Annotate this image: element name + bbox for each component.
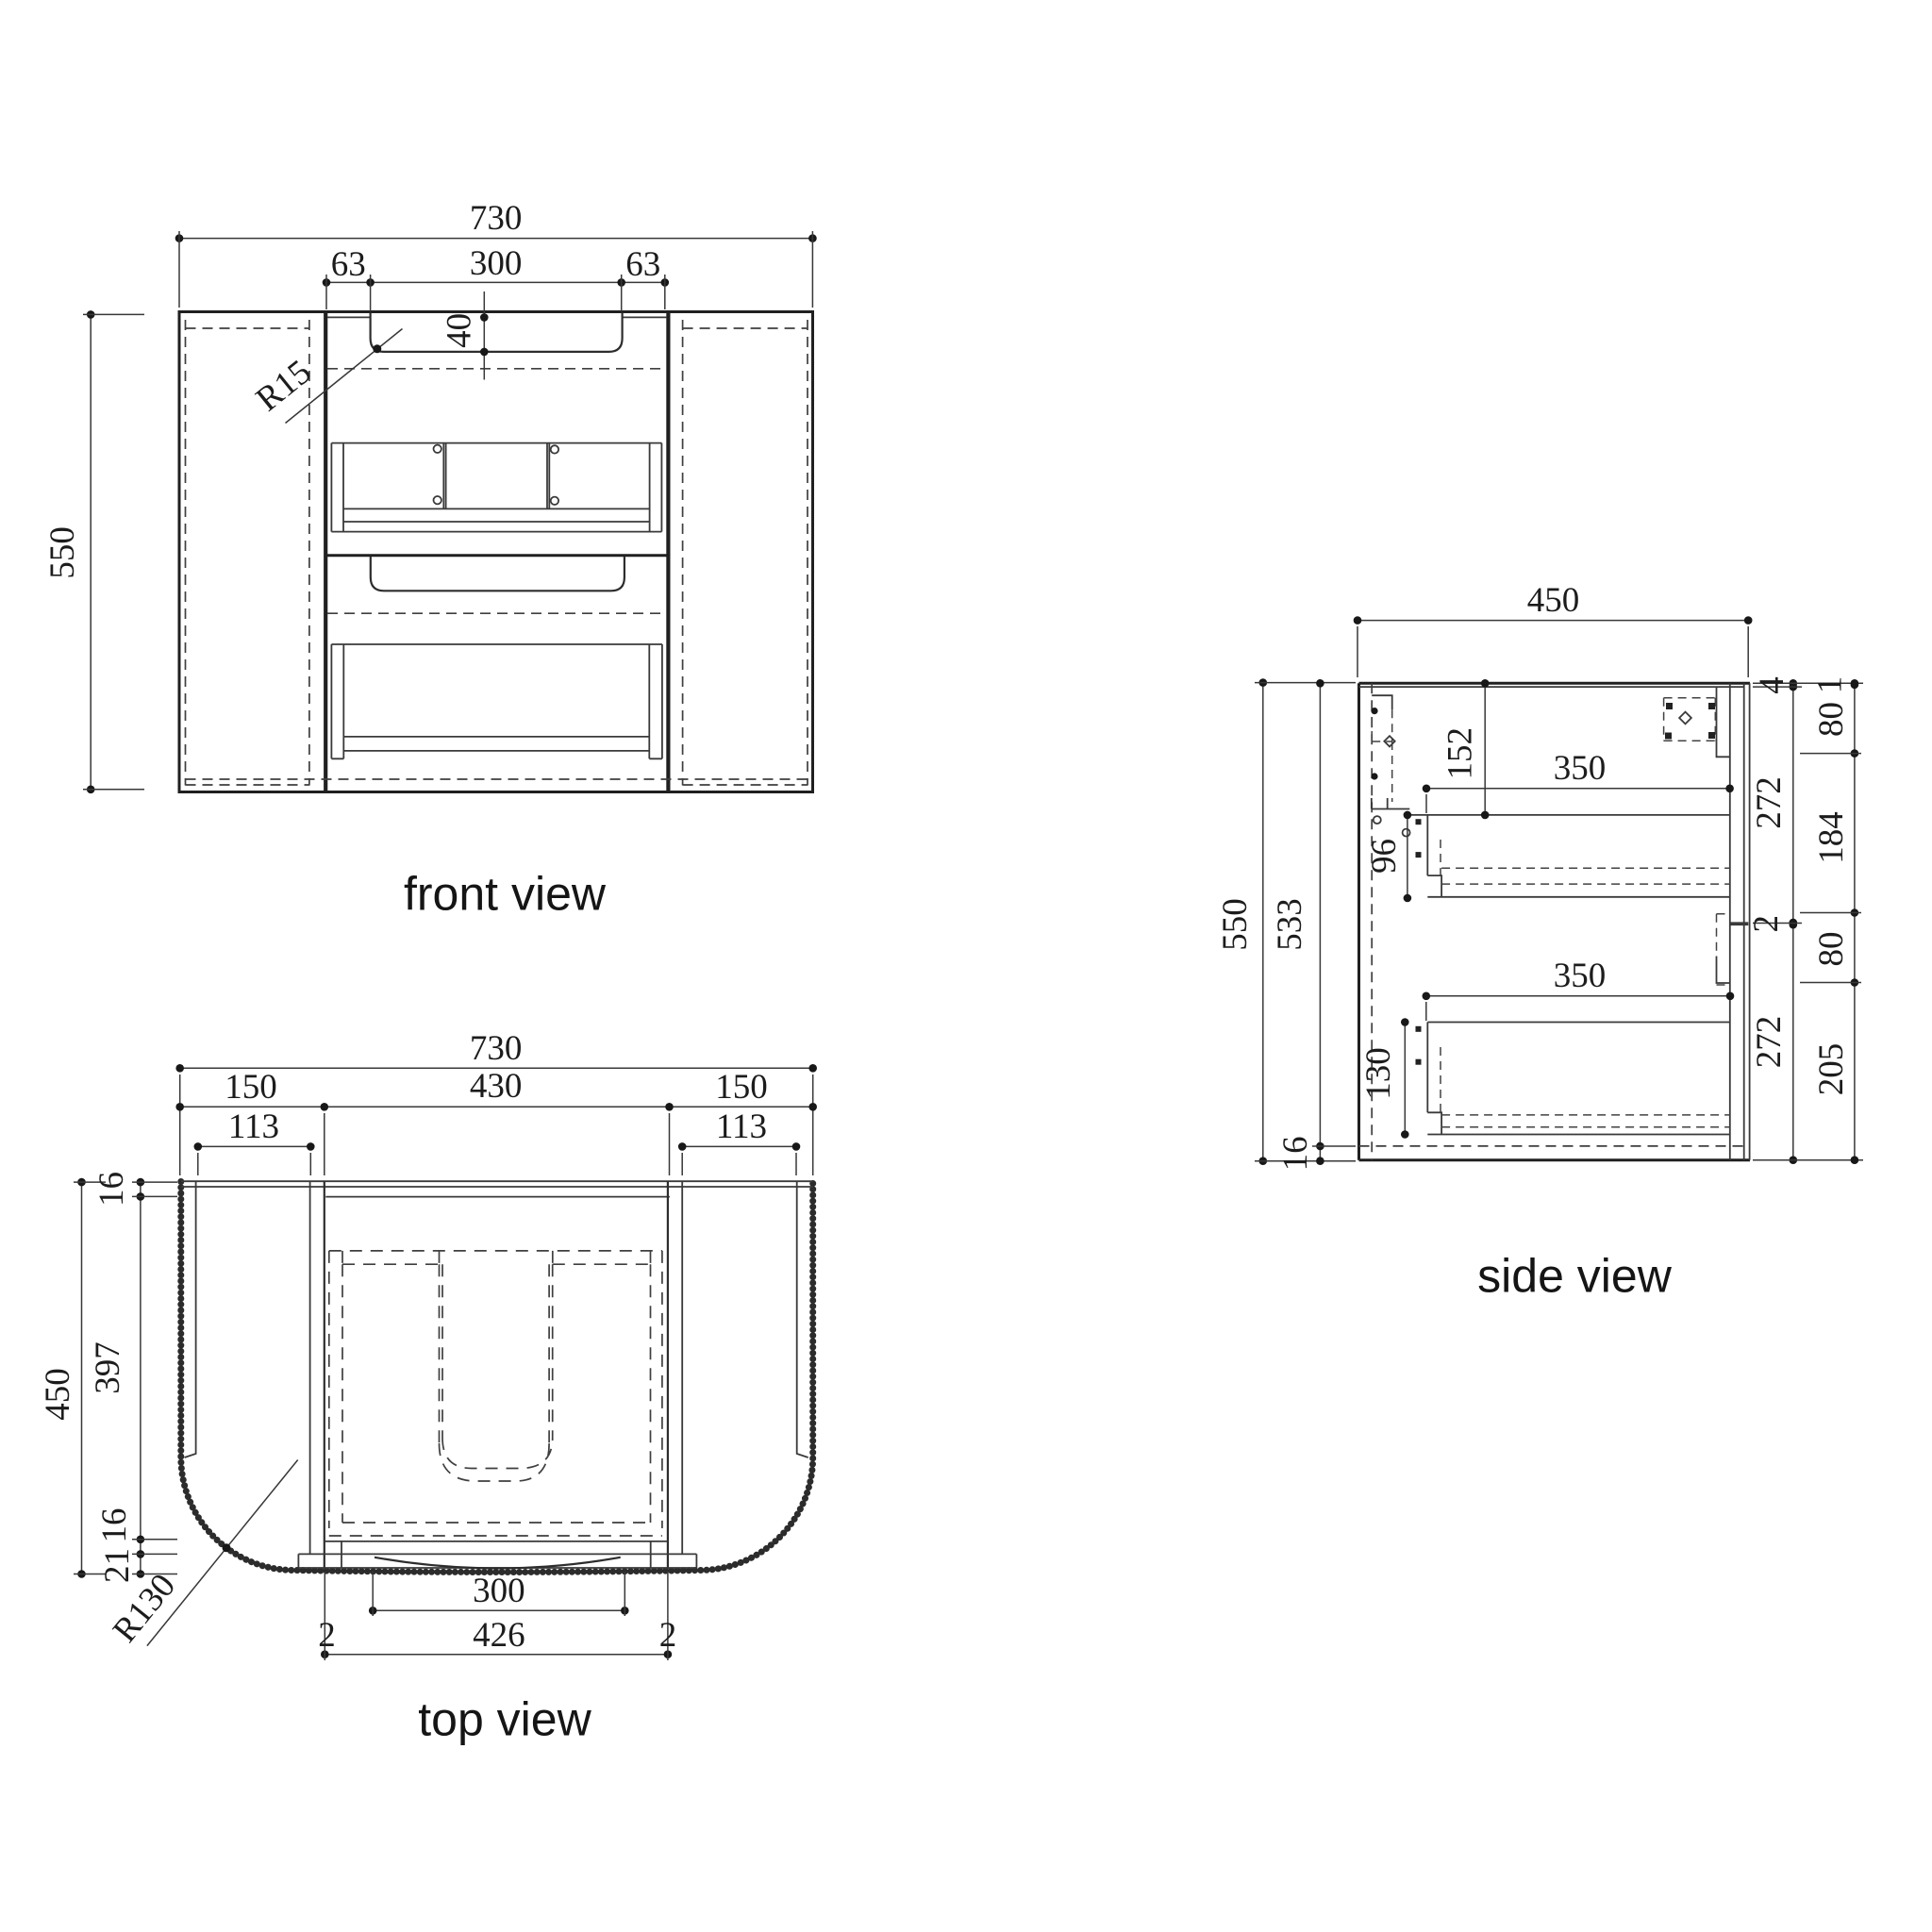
svg-text:150: 150 (225, 1068, 277, 1107)
svg-text:730: 730 (470, 1029, 523, 1068)
svg-text:1: 1 (1811, 676, 1850, 694)
svg-text:80: 80 (1812, 932, 1851, 967)
svg-text:272: 272 (1750, 1016, 1789, 1069)
svg-text:130: 130 (1359, 1047, 1398, 1100)
svg-text:450: 450 (39, 1368, 77, 1421)
svg-text:730: 730 (470, 199, 523, 238)
svg-text:430: 430 (470, 1067, 523, 1106)
svg-text:300: 300 (470, 244, 523, 283)
svg-text:2: 2 (318, 1616, 336, 1655)
svg-text:550: 550 (43, 526, 82, 579)
svg-text:top view: top view (418, 1692, 591, 1745)
svg-text:16: 16 (1276, 1136, 1315, 1171)
svg-text:426: 426 (473, 1616, 525, 1655)
svg-text:152: 152 (1441, 727, 1480, 780)
svg-text:63: 63 (331, 245, 366, 284)
svg-text:16: 16 (95, 1508, 134, 1543)
svg-text:80: 80 (1812, 702, 1851, 737)
svg-text:2: 2 (659, 1616, 677, 1655)
svg-text:4: 4 (1753, 676, 1791, 694)
svg-text:front view: front view (404, 868, 607, 921)
svg-text:272: 272 (1750, 776, 1789, 829)
svg-text:40: 40 (441, 313, 479, 348)
svg-text:350: 350 (1554, 749, 1607, 788)
svg-text:550: 550 (1216, 898, 1255, 951)
svg-text:350: 350 (1554, 957, 1607, 995)
svg-text:21: 21 (98, 1548, 137, 1583)
svg-text:113: 113 (716, 1108, 767, 1146)
svg-text:16: 16 (92, 1172, 131, 1207)
svg-text:300: 300 (473, 1572, 525, 1610)
svg-text:184: 184 (1812, 811, 1851, 864)
svg-text:2: 2 (1747, 915, 1786, 933)
svg-text:150: 150 (715, 1068, 768, 1107)
svg-text:side view: side view (1477, 1250, 1673, 1303)
svg-text:63: 63 (625, 245, 660, 284)
svg-text:205: 205 (1812, 1043, 1851, 1096)
svg-text:113: 113 (228, 1108, 279, 1146)
svg-text:96: 96 (1365, 839, 1404, 874)
svg-text:450: 450 (1527, 581, 1580, 620)
svg-text:397: 397 (89, 1341, 127, 1394)
svg-text:533: 533 (1271, 898, 1309, 951)
